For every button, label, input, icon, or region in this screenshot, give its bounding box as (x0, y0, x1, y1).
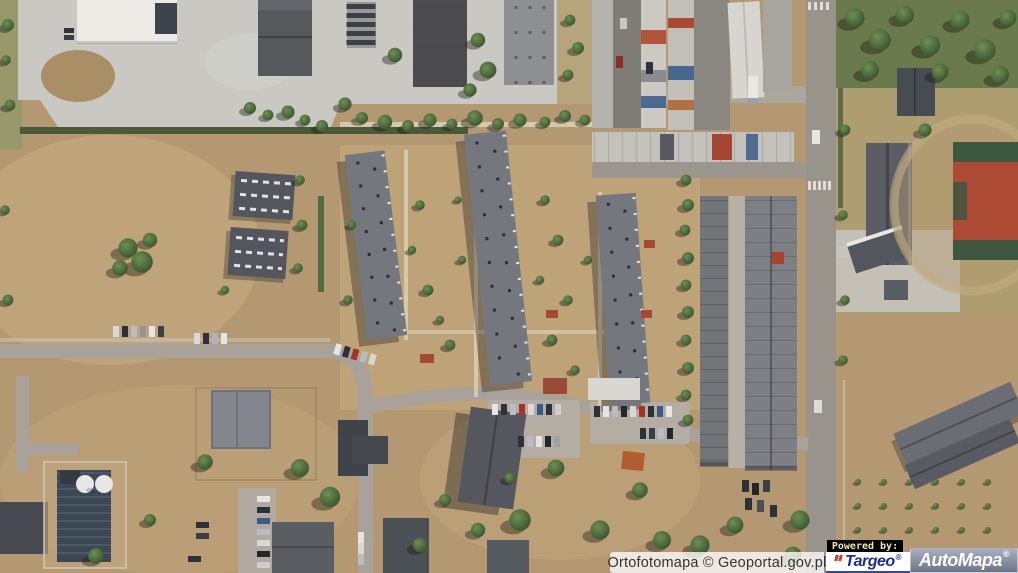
registered-trademark-symbol: ® (1003, 550, 1009, 559)
map-attribution: Ortofotomapa © Geoportal.gov.pl (610, 552, 824, 573)
aerial-imagery (0, 0, 1018, 573)
map-viewport[interactable]: Ortofotomapa © Geoportal.gov.pl Powered … (0, 0, 1018, 573)
automapa-logo[interactable]: AutoMapa® (910, 548, 1018, 573)
targeo-quote-icon (838, 555, 842, 561)
targeo-logo[interactable]: Targeo® (826, 552, 910, 573)
registered-trademark-symbol: ® (896, 554, 901, 562)
garage-rows (700, 196, 797, 471)
targeo-wordmark: Targeo (845, 553, 895, 571)
storage-tanks-facility (44, 462, 126, 568)
apartment-block-skylights (223, 227, 288, 283)
apartment-block-skylights (228, 171, 295, 224)
attribution-text: Ortofotomapa © Geoportal.gov.pl (608, 555, 827, 571)
automapa-wordmark: AutoMapa (919, 550, 1002, 571)
